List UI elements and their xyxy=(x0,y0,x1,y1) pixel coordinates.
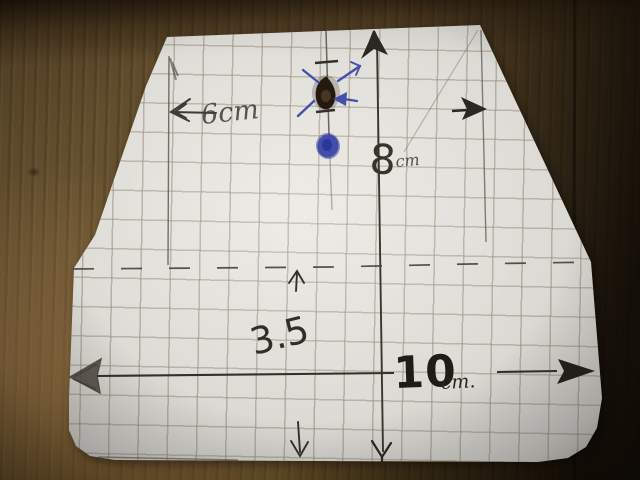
hole-inner-highlight xyxy=(321,90,331,102)
diagonal-construction-line xyxy=(404,30,478,152)
height-bottom-arrowhead-icon xyxy=(372,441,391,463)
corner-smudge xyxy=(170,58,178,80)
left-extension-line xyxy=(168,56,169,265)
x-arm-lower-left xyxy=(298,101,314,116)
blue-ink-dot xyxy=(315,132,340,159)
offset-label: 3.5 xyxy=(246,308,313,364)
photo-frame: 6cm xyxy=(0,0,640,480)
ink-dot-core xyxy=(322,139,332,151)
height-unit-label: cm xyxy=(395,150,421,171)
fold-dashed-line xyxy=(73,262,598,269)
bottom-width-unit-label: cm. xyxy=(440,370,476,394)
bottom-line-left xyxy=(97,373,394,376)
offset-up-arrow-shaft xyxy=(296,273,297,291)
top-width-label: 6cm xyxy=(199,94,260,131)
bottom-line-right xyxy=(497,371,557,372)
offset-dimension: 3.5 xyxy=(246,271,313,456)
height-line xyxy=(377,42,383,452)
dashed-line xyxy=(73,262,598,269)
bottom-edge-pencil-line xyxy=(98,457,238,460)
right-extension-line xyxy=(481,30,486,242)
center-axis xyxy=(315,31,338,210)
x-arm-upper-left xyxy=(303,70,318,82)
upper-tick xyxy=(315,61,338,63)
height-value-label: 8 xyxy=(368,135,397,184)
right-arrow-shaft xyxy=(452,110,468,111)
bottom-right-arrowhead-icon xyxy=(557,359,595,384)
pencil-markings: 6cm xyxy=(0,0,640,480)
offset-down-arrow-shaft xyxy=(298,422,300,452)
bottom-width-dimension: 10 cm. xyxy=(70,346,595,460)
